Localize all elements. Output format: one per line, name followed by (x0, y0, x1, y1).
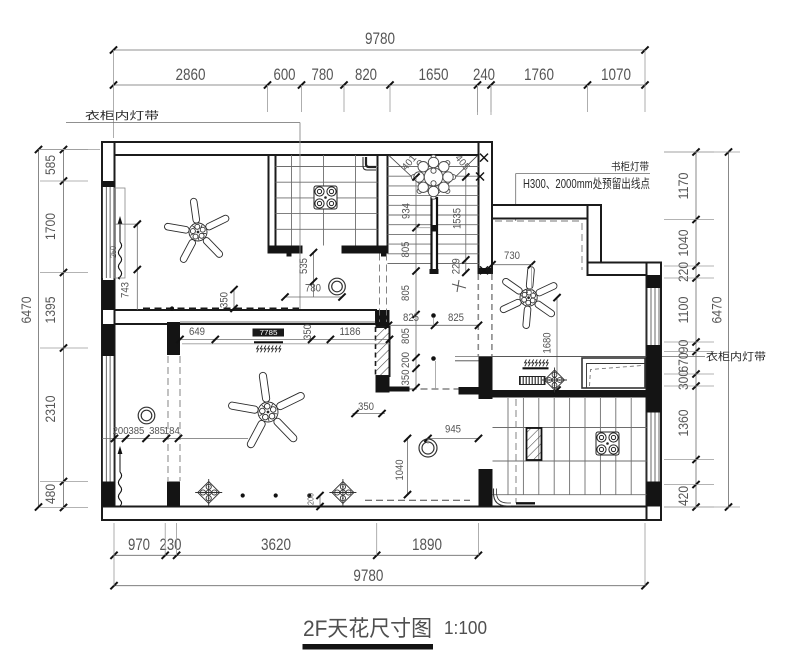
svg-text:743: 743 (120, 282, 132, 298)
svg-text:970: 970 (128, 536, 150, 554)
svg-text:350: 350 (358, 401, 374, 413)
svg-text:6470: 6470 (709, 296, 725, 323)
svg-text:229: 229 (451, 258, 463, 274)
svg-text:衣柜内灯带: 衣柜内灯带 (85, 109, 159, 122)
svg-text:200: 200 (113, 426, 129, 437)
svg-text:730: 730 (504, 250, 520, 262)
svg-text:1650: 1650 (419, 66, 449, 84)
svg-text:945: 945 (445, 424, 461, 436)
svg-text:805: 805 (400, 242, 412, 258)
svg-text:805: 805 (400, 285, 412, 301)
svg-text:9780: 9780 (365, 30, 395, 48)
svg-text:1890: 1890 (412, 536, 442, 554)
svg-text:780: 780 (305, 283, 321, 295)
svg-text:H300、2000mm处预留出线点: H300、2000mm处预留出线点 (523, 177, 650, 191)
svg-text:1360: 1360 (675, 409, 691, 436)
svg-text:1100: 1100 (675, 296, 691, 323)
svg-text:书柜灯带: 书柜灯带 (611, 160, 649, 173)
svg-text:600: 600 (274, 66, 296, 84)
svg-text:1070: 1070 (601, 66, 631, 84)
svg-text:825: 825 (403, 312, 419, 324)
svg-text:184: 184 (164, 426, 180, 437)
svg-text:1170: 1170 (675, 172, 691, 199)
svg-text:820: 820 (355, 66, 377, 84)
svg-text:1680: 1680 (542, 333, 554, 354)
svg-text:350: 350 (219, 292, 231, 308)
svg-text:9780: 9780 (353, 567, 383, 585)
svg-text:2310: 2310 (42, 395, 58, 422)
svg-text:934: 934 (401, 203, 413, 219)
svg-text:649: 649 (189, 326, 205, 338)
svg-text:7785: 7785 (260, 330, 278, 337)
svg-text:1395: 1395 (42, 296, 58, 323)
svg-text:1535: 1535 (451, 208, 463, 229)
svg-text:535: 535 (298, 258, 310, 274)
svg-text:585: 585 (42, 155, 58, 175)
svg-text:200: 200 (400, 352, 412, 368)
svg-text:240: 240 (473, 66, 495, 84)
svg-text:6470: 6470 (18, 296, 34, 323)
svg-text:350: 350 (400, 370, 412, 386)
svg-text:3620: 3620 (261, 536, 291, 554)
svg-text:1040: 1040 (394, 460, 406, 481)
svg-text:480: 480 (42, 484, 58, 504)
svg-text:350: 350 (302, 324, 314, 340)
svg-text:670: 670 (675, 352, 691, 372)
svg-text:230: 230 (160, 536, 182, 554)
svg-text:780: 780 (312, 66, 334, 84)
svg-text:1186: 1186 (340, 326, 361, 338)
svg-text:1:100: 1:100 (444, 618, 487, 638)
svg-text:825: 825 (448, 312, 464, 324)
svg-text:2F天花尺寸图: 2F天花尺寸图 (303, 616, 432, 641)
svg-text:250: 250 (108, 246, 118, 258)
svg-text:1700: 1700 (42, 213, 58, 240)
svg-text:220: 220 (675, 262, 691, 282)
svg-text:2860: 2860 (176, 66, 206, 84)
svg-text:805: 805 (400, 328, 412, 344)
svg-text:1040: 1040 (675, 229, 691, 256)
svg-text:420: 420 (675, 486, 691, 506)
svg-text:300: 300 (675, 370, 691, 390)
svg-text:衣柜内灯带: 衣柜内灯带 (706, 350, 766, 363)
svg-text:200: 200 (306, 493, 316, 505)
svg-text:385: 385 (128, 426, 144, 437)
svg-text:1760: 1760 (524, 66, 554, 84)
